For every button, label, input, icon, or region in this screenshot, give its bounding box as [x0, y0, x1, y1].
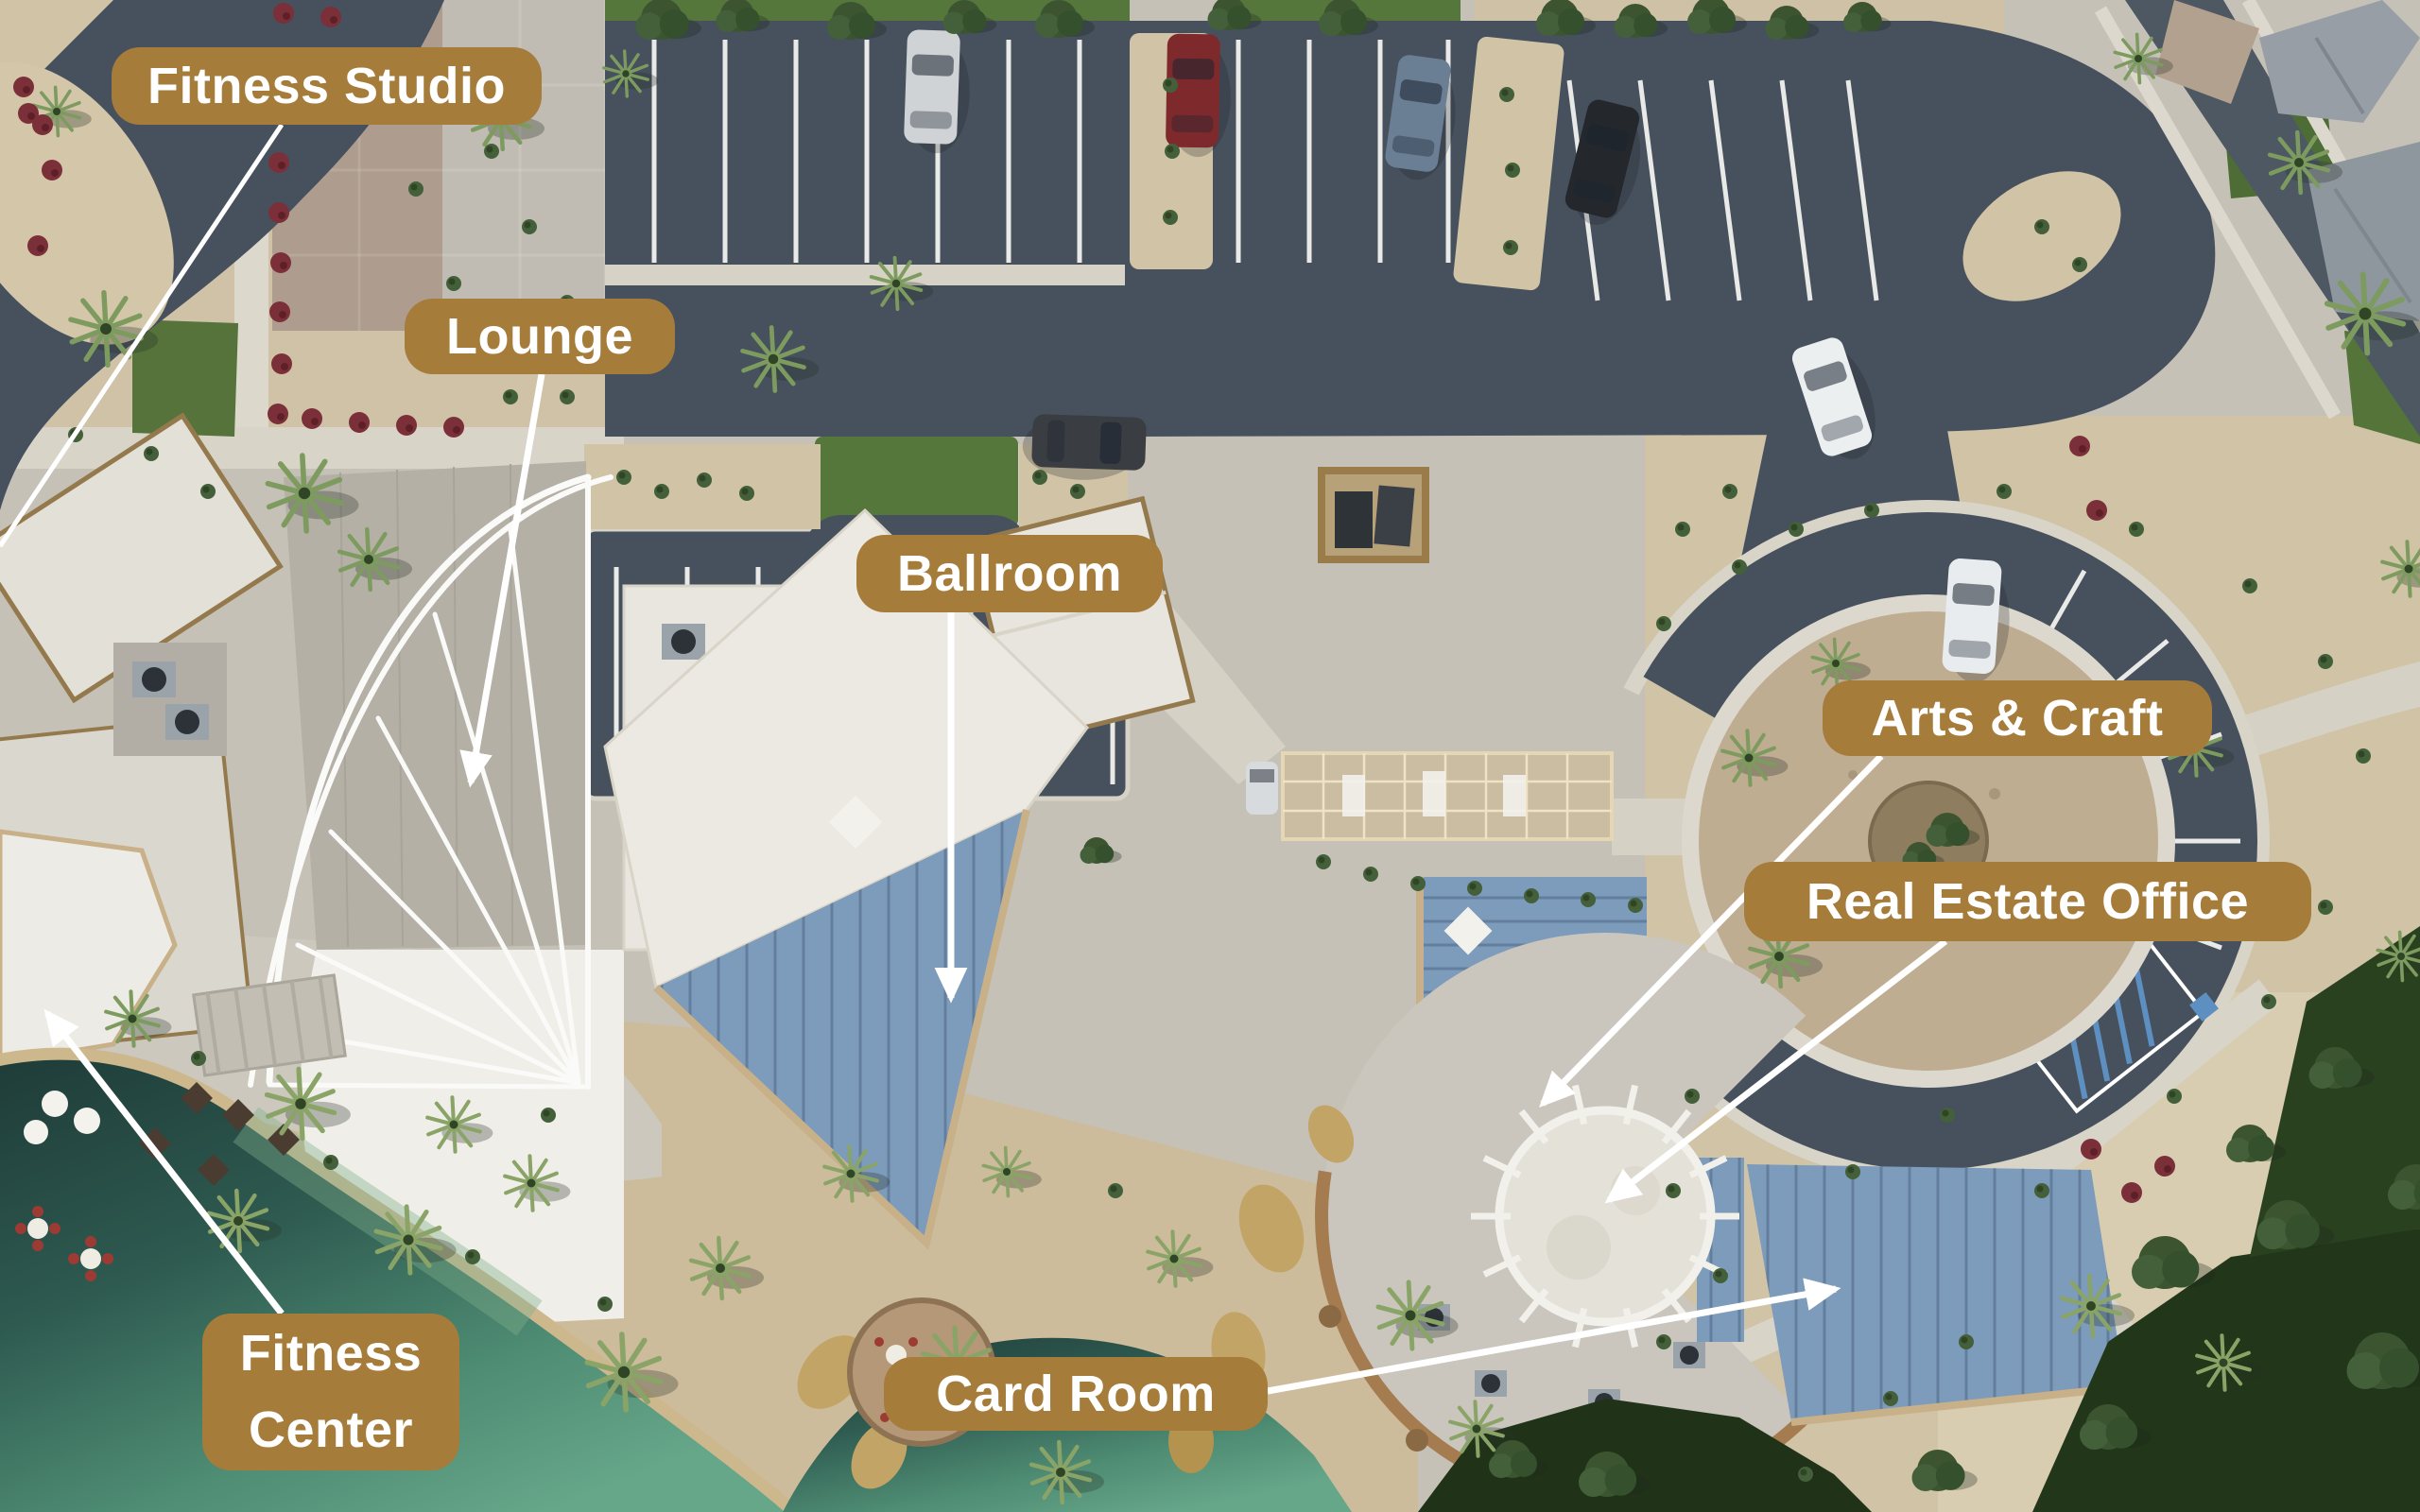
map-label-ballroom: Ballroom — [856, 535, 1163, 612]
map-label-fitness-center: Fitness Center — [202, 1314, 459, 1470]
map-label-card-room: Card Room — [884, 1357, 1268, 1431]
map-label-real-estate-office: Real Estate Office — [1744, 862, 2311, 941]
map-label-arts-and-craft: Arts & Craft — [1823, 680, 2212, 756]
map-label-fitness-studio: Fitness Studio — [112, 47, 542, 125]
map-labels: Fitness StudioLoungeBallroomArts & Craft… — [0, 0, 2420, 1512]
aerial-map: Fitness StudioLoungeBallroomArts & Craft… — [0, 0, 2420, 1512]
map-label-lounge: Lounge — [405, 299, 675, 374]
